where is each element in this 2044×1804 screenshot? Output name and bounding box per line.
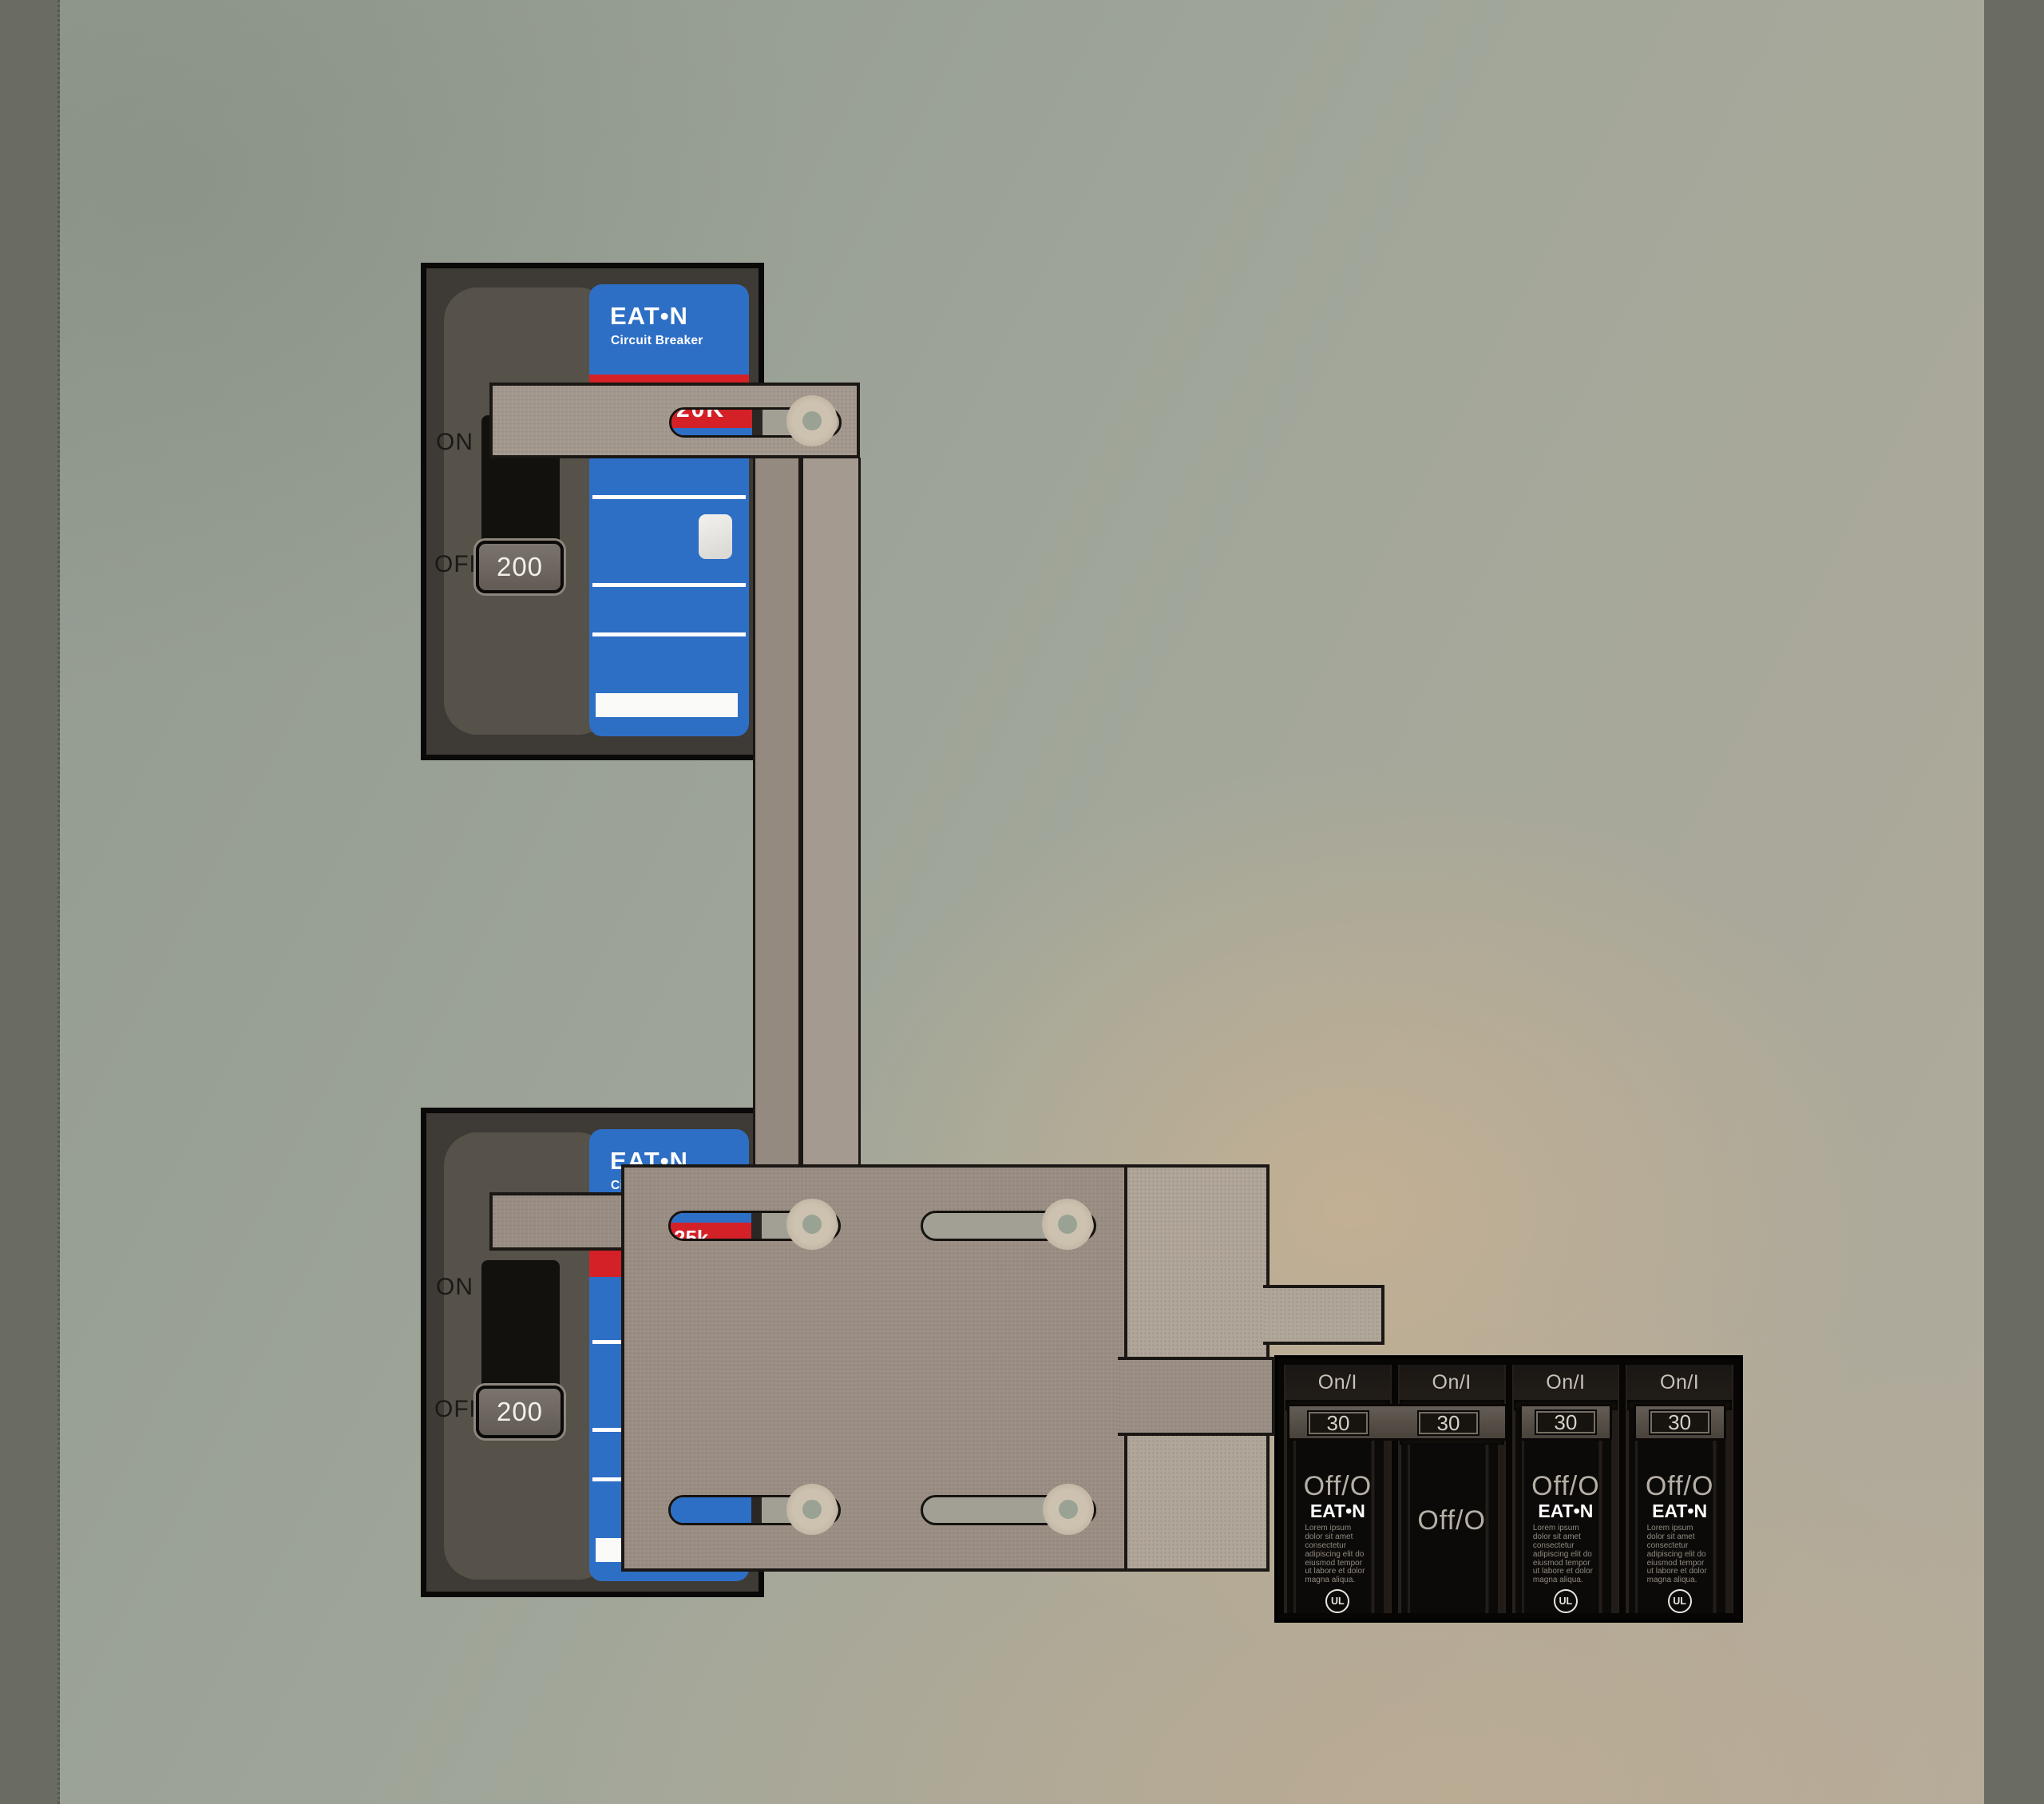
interlock-plate-tab (1118, 1357, 1275, 1436)
breaker-body: Off/O EAT•N Lorem ipsum dolor sit amet c… (1514, 1410, 1618, 1613)
interlock-riser-left (753, 458, 801, 1168)
main-breaker-handle[interactable]: 200 (476, 541, 564, 593)
on-label: ON (436, 429, 473, 456)
off-label: Off/O (1304, 1473, 1373, 1500)
interlock-riser-right (801, 458, 861, 1168)
breaker-body: Off/O EAT•N Lorem ipsum dolor sit amet c… (1627, 1410, 1732, 1613)
left-edge-band (0, 0, 60, 1804)
amp-window: 30 (1535, 1409, 1597, 1435)
handle-tie-bar[interactable]: 30 30 (1287, 1404, 1507, 1441)
main-breaker-handle[interactable]: 200 (476, 1386, 564, 1438)
eaton-label: EAT•N Circuit Breaker (589, 284, 749, 736)
branch-breaker-handle[interactable]: 30 (1634, 1404, 1726, 1441)
screw-icon (786, 1199, 838, 1250)
ul-mark-icon: UL (1554, 1589, 1578, 1613)
screw-icon (786, 395, 838, 446)
branch-unit-4: On/I 30 Off/O EAT•N Lorem ipsum dolor si… (1626, 1365, 1733, 1613)
brand-logo: EAT•N (610, 302, 688, 331)
interlock-slide-arm (1263, 1285, 1384, 1345)
interlock-bottom-bar (489, 1192, 629, 1251)
scene: ON OFF 200 EAT•N Circuit Breaker ON OFF … (0, 0, 2044, 1804)
hologram-sticker (699, 514, 732, 559)
on-label: ON (436, 1274, 473, 1301)
amp-window: 30 (1649, 1409, 1711, 1435)
brand-logo: EAT•N (1310, 1501, 1365, 1521)
off-label: Off/O (1417, 1507, 1486, 1534)
breaker-body: Off/O EAT•N Lorem ipsum dolor sit amet c… (1285, 1410, 1390, 1613)
off-label: Off/O (1646, 1473, 1714, 1500)
fine-print: Lorem ipsum dolor sit amet consectetur a… (1305, 1524, 1370, 1585)
label-line (592, 495, 746, 499)
fine-print: Lorem ipsum dolor sit amet consectetur a… (1647, 1524, 1713, 1585)
interrupt-rating-text: 25k (674, 1226, 708, 1241)
label-line (592, 583, 746, 587)
branch-unit-3: On/I 30 Off/O EAT•N Lorem ipsum dolor si… (1512, 1365, 1620, 1613)
ul-mark-icon: UL (1668, 1589, 1692, 1613)
branch-breaker-handle[interactable]: 30 (1519, 1404, 1612, 1441)
on-label: On/I (1400, 1365, 1504, 1400)
on-label: On/I (1514, 1365, 1618, 1400)
breaker-body: Off/O (1400, 1445, 1504, 1613)
screw-icon (786, 1484, 838, 1535)
blank-label-area (596, 693, 738, 717)
on-label: On/I (1285, 1365, 1390, 1400)
screw-icon (1043, 1484, 1094, 1535)
branch-breaker-panel: On/I Off/O EAT•N Lorem ipsum dolor sit a… (1274, 1355, 1743, 1623)
brand-logo: EAT•N (1538, 1501, 1593, 1521)
ul-mark-icon: UL (1325, 1589, 1349, 1613)
on-label: On/I (1627, 1365, 1732, 1400)
right-edge-band (1984, 0, 2044, 1804)
amp-window: 30 (1307, 1410, 1369, 1436)
off-label: Off/O (1531, 1473, 1600, 1500)
interrupt-rating-text: 20K (676, 407, 725, 423)
screw-icon (1042, 1199, 1093, 1250)
fine-print: Lorem ipsum dolor sit amet consectetur a… (1533, 1524, 1598, 1585)
brand-logo: EAT•N (1652, 1501, 1707, 1521)
branch-unit-2: On/I Off/O (1398, 1365, 1506, 1613)
handle-track: 30 (1514, 1400, 1618, 1410)
brand-subtitle: Circuit Breaker (611, 334, 703, 348)
label-line (592, 632, 746, 636)
handle-track: 30 (1627, 1400, 1732, 1410)
amp-window: 30 (1417, 1410, 1480, 1436)
main-breaker-top: ON OFF 200 EAT•N Circuit Breaker (421, 263, 764, 760)
branch-unit-1: On/I Off/O EAT•N Lorem ipsum dolor sit a… (1284, 1365, 1392, 1613)
